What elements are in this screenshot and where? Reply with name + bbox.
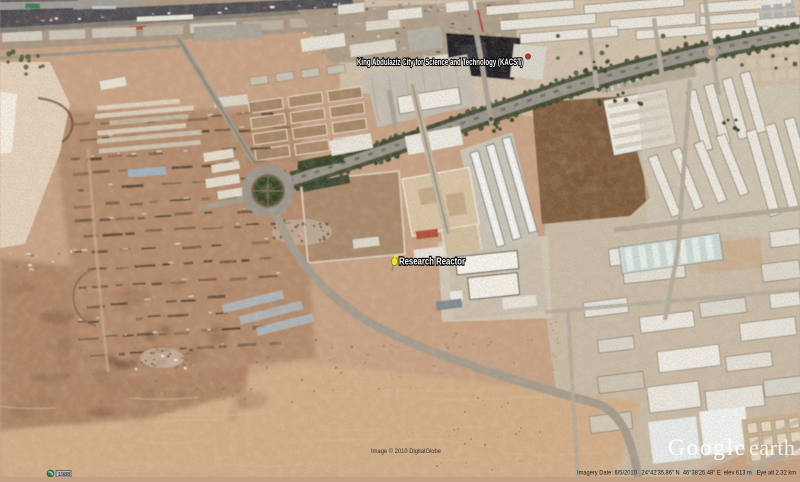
svg-text:King Abdulaziz City for Scienc: King Abdulaziz City for Science and Tech…: [357, 57, 523, 68]
svg-text:earth: earth: [749, 435, 795, 460]
svg-text:Image © 2010 DigitalGlobe: Image © 2010 DigitalGlobe: [371, 448, 442, 455]
svg-text:1988: 1988: [58, 472, 70, 477]
svg-text:Research Reactor: Research Reactor: [399, 256, 465, 268]
svg-text:Imagery Date: 6/5/2010 24°42: Imagery Date: 6/5/2010 24°42′35.86″ N 46…: [577, 471, 796, 477]
